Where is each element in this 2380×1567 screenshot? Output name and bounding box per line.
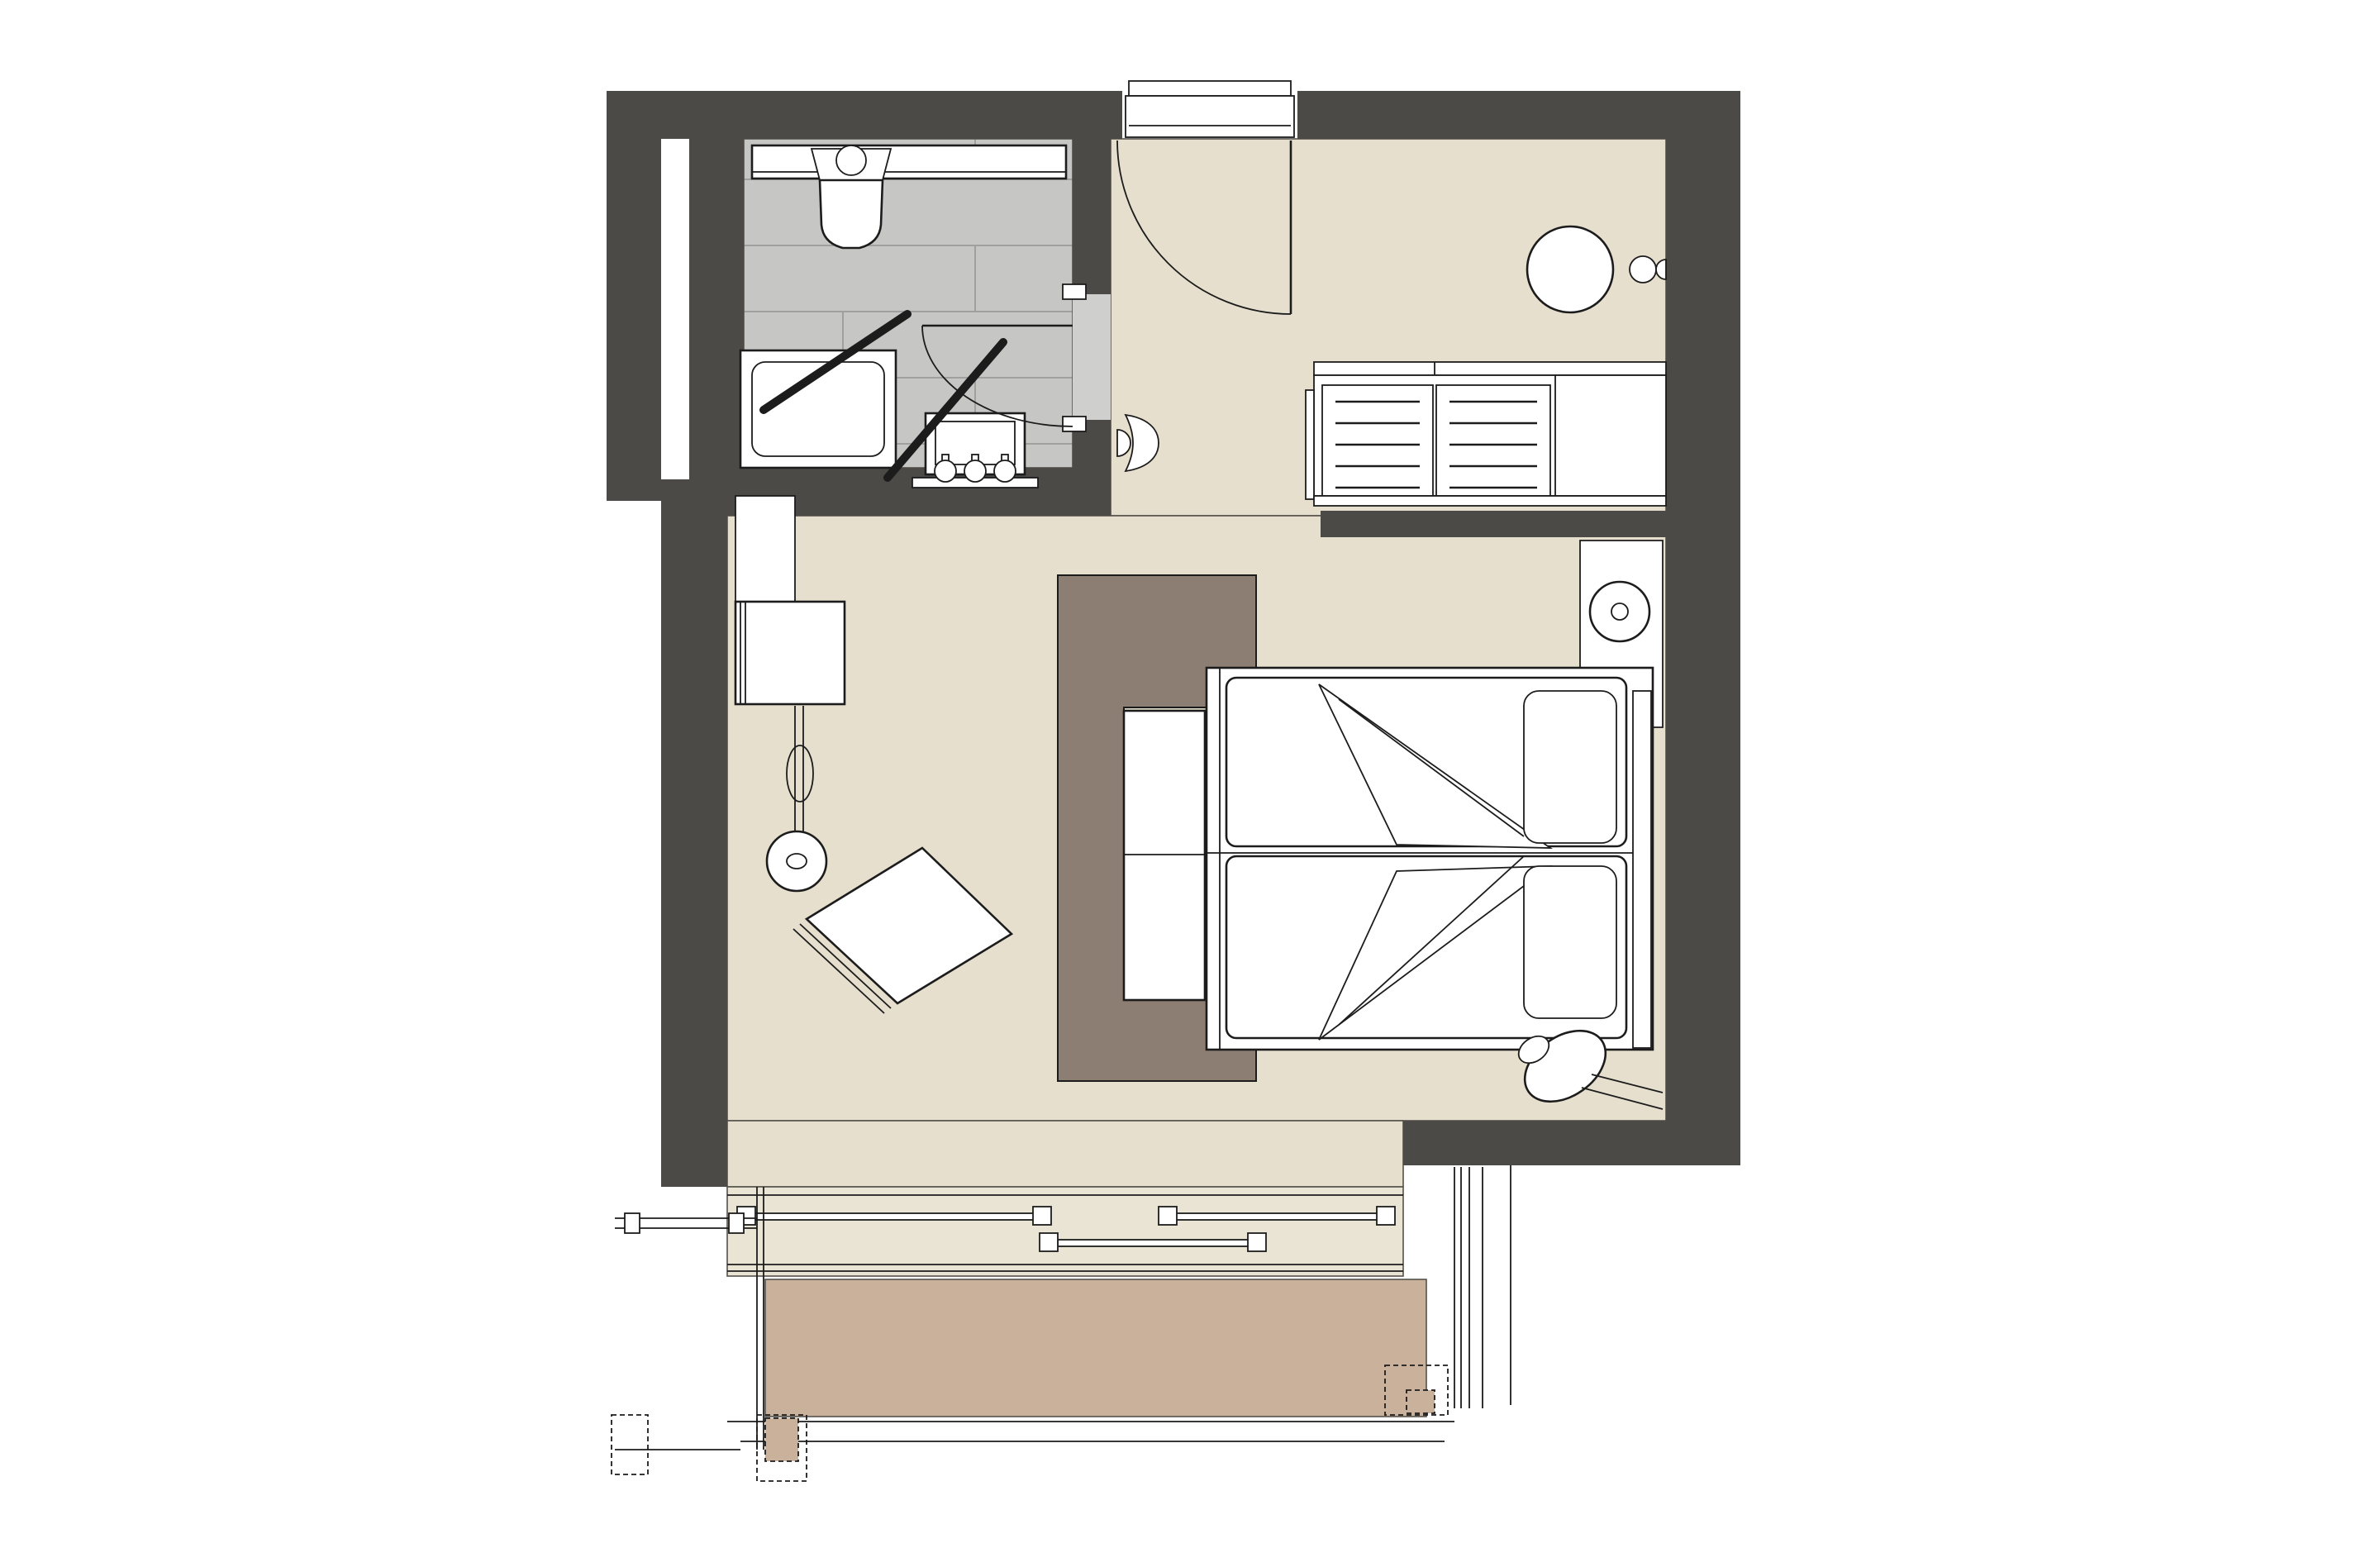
toilet-flush	[836, 145, 866, 175]
toilet-bowl	[820, 180, 883, 248]
desk	[735, 602, 845, 704]
sliding-panel-middle	[1058, 1240, 1256, 1246]
pillow-bottom	[1524, 866, 1616, 1018]
glass-clamp-1	[625, 1213, 640, 1233]
left-outer-wall	[607, 139, 661, 479]
double-bed	[1207, 668, 1653, 1050]
south-east-wall	[1403, 1121, 1666, 1165]
tap-knob-3	[994, 460, 1016, 482]
sconce-globe-icon	[1630, 256, 1656, 283]
panel-block-2	[1033, 1207, 1051, 1225]
wall-niche-cabinet	[735, 496, 795, 602]
post-right-core	[1407, 1390, 1435, 1413]
wardrobe	[1306, 362, 1666, 506]
wardrobe-handle-edge	[1306, 390, 1314, 499]
closet-back-wall	[1321, 511, 1666, 537]
balcony-floor	[765, 1279, 1426, 1417]
left-wall-connector	[607, 479, 661, 501]
entry-threshold	[1126, 96, 1294, 137]
right-wall	[1666, 91, 1740, 1165]
entry-round-stool	[1527, 226, 1613, 312]
tap-knob-2	[964, 460, 986, 482]
wardrobe-bottom-strip	[1314, 496, 1666, 506]
cistern-shelf	[752, 145, 1066, 179]
bathroom-west-wall	[689, 139, 744, 512]
entry-door-frame-outside	[1129, 81, 1291, 96]
tap-knob-1	[935, 460, 956, 482]
bathroom-door-gap-floor	[1073, 294, 1111, 420]
pillow-top	[1524, 691, 1616, 843]
bathroom-door-jamb-north	[1063, 284, 1086, 299]
table-lamp-bulb-icon	[1611, 603, 1628, 620]
panel-block-6	[1248, 1233, 1266, 1251]
bench-cushions	[1124, 711, 1205, 1000]
floor-plan	[0, 0, 2380, 1567]
panel-block-3	[1159, 1207, 1177, 1225]
wardrobe-open-shelf	[1555, 375, 1666, 496]
bathroom-east-wall-lower	[1073, 420, 1111, 516]
sliding-panel-right	[1173, 1213, 1385, 1220]
toilet	[812, 145, 891, 248]
bathroom-east-wall-upper	[1073, 139, 1111, 294]
lamp-bulb-icon	[787, 854, 807, 869]
top-wall-left	[607, 91, 1122, 139]
post-left-core	[765, 1418, 798, 1461]
bathroom-door-jamb-south	[1063, 417, 1086, 431]
bedroom-floor-south	[727, 1121, 1403, 1187]
window-band-floor	[727, 1187, 1403, 1276]
floor-plan-drawing	[0, 0, 2380, 1567]
wardrobe-top-strip	[1314, 362, 1666, 375]
headboard-panel	[1633, 691, 1651, 1048]
left-lower-wall	[661, 479, 727, 1187]
sliding-panel-left	[754, 1213, 1041, 1220]
panel-block-5	[1040, 1233, 1058, 1251]
glass-clamp-2	[729, 1213, 744, 1233]
desk-top	[735, 602, 845, 704]
panel-block-4	[1377, 1207, 1395, 1225]
